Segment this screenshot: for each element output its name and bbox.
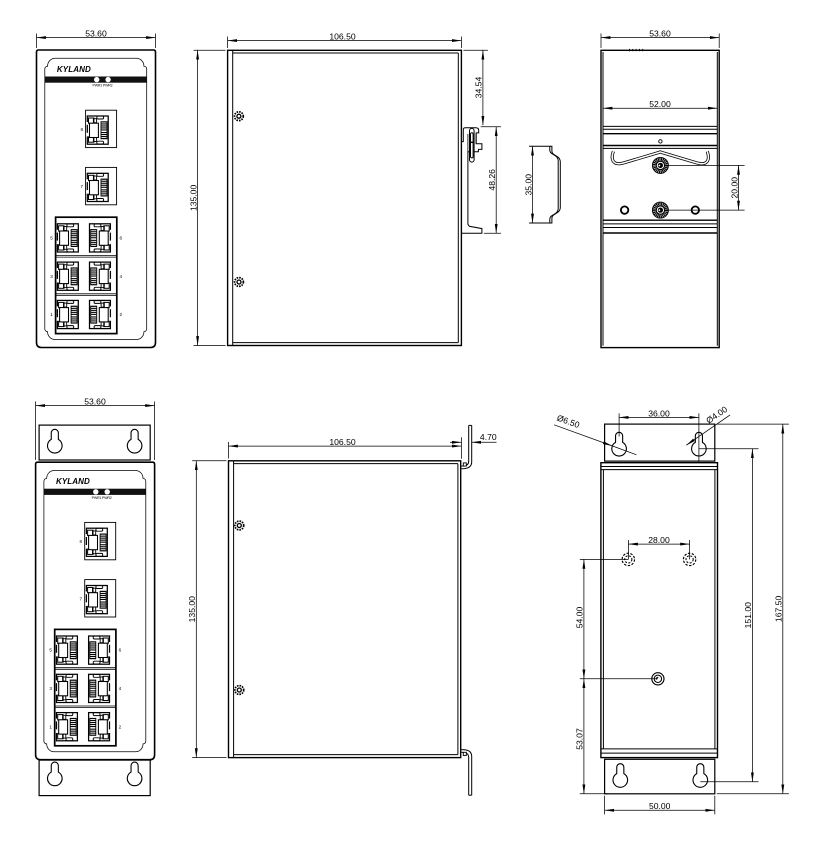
svg-text:53.07: 53.07 [575, 728, 585, 750]
svg-text:106.50: 106.50 [329, 32, 356, 42]
svg-text:135.00: 135.00 [188, 185, 198, 212]
svg-text:53.60: 53.60 [84, 397, 106, 407]
svg-text:151.00: 151.00 [743, 602, 753, 629]
svg-text:54.00: 54.00 [575, 607, 585, 629]
svg-text:Ø6.50: Ø6.50 [556, 413, 582, 430]
svg-text:Ø4.00: Ø4.00 [704, 404, 729, 426]
svg-text:135.00: 135.00 [187, 596, 197, 623]
svg-text:20.00: 20.00 [729, 177, 739, 199]
svg-text:28.00: 28.00 [648, 535, 670, 545]
svg-text:4.70: 4.70 [480, 432, 497, 442]
svg-text:48.26: 48.26 [487, 169, 497, 191]
svg-text:167.50: 167.50 [774, 596, 784, 623]
svg-text:106.50: 106.50 [329, 437, 356, 447]
svg-text:53.60: 53.60 [85, 29, 107, 39]
svg-text:53.60: 53.60 [649, 29, 671, 39]
svg-text:34.54: 34.54 [474, 77, 484, 99]
svg-text:36.00: 36.00 [648, 408, 670, 418]
svg-text:50.00: 50.00 [649, 801, 671, 811]
svg-text:35.00: 35.00 [523, 174, 533, 196]
svg-text:52.00: 52.00 [649, 99, 671, 109]
